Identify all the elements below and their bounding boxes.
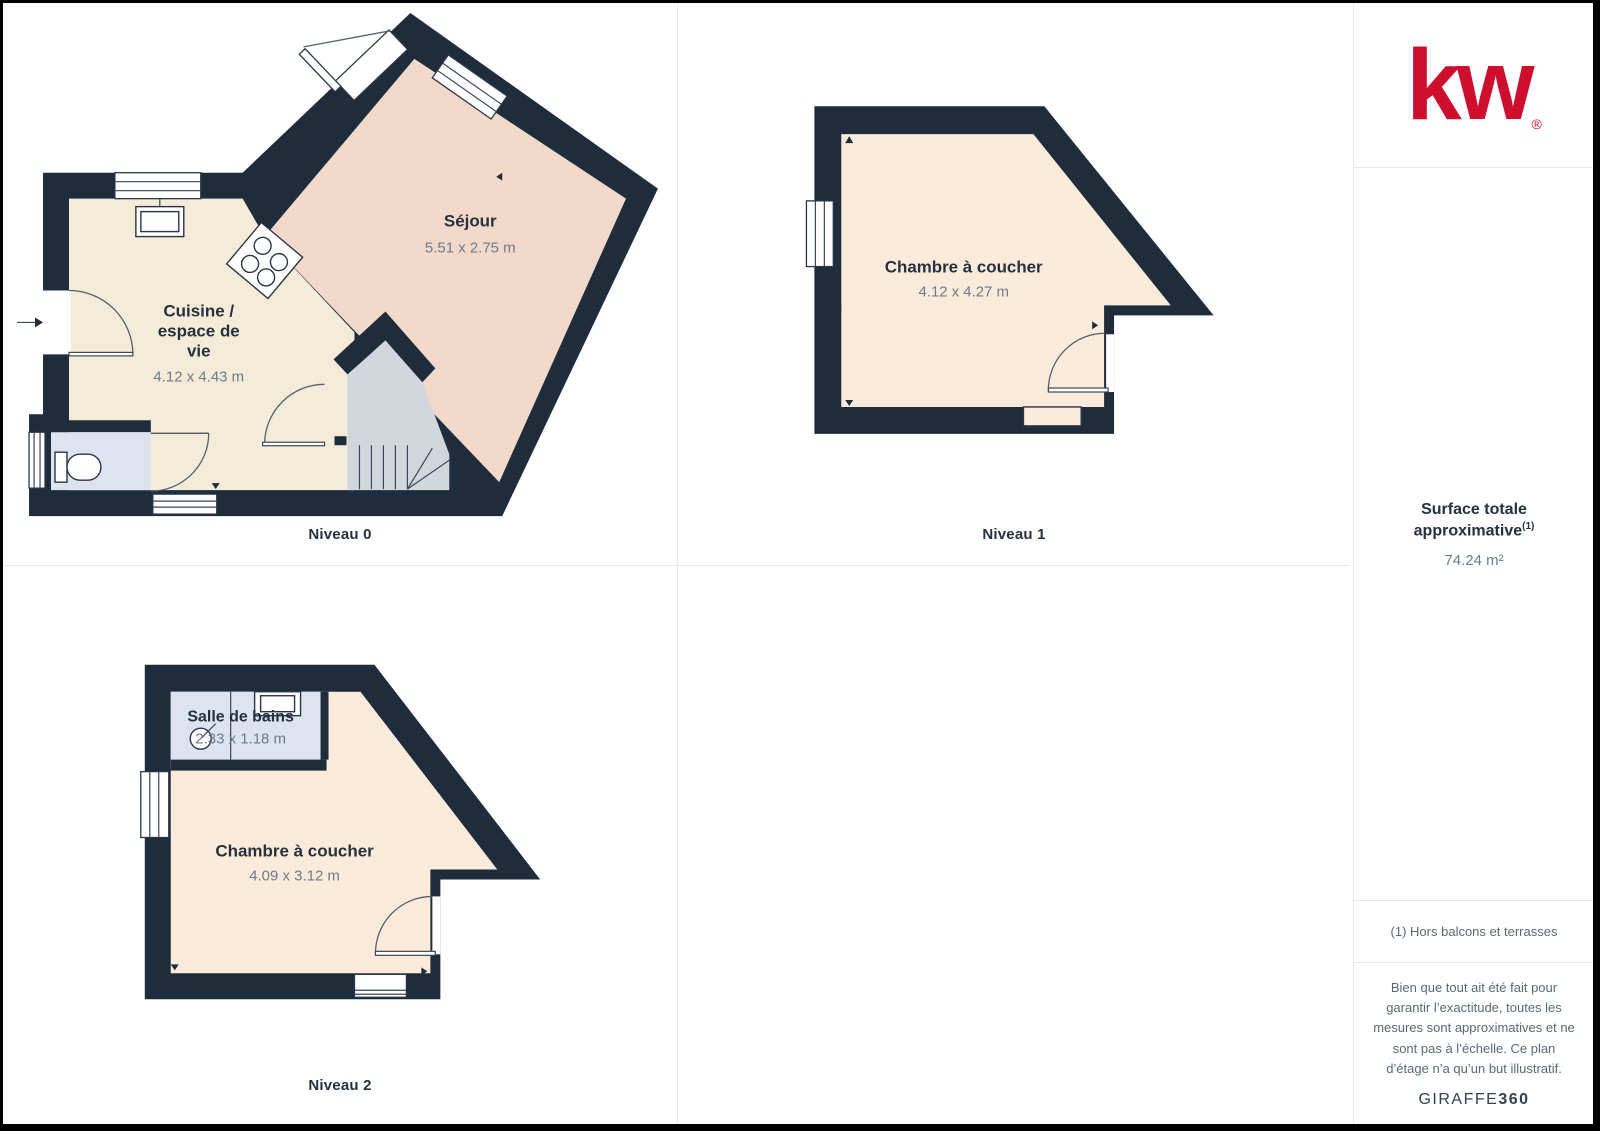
room-dims-sejour: 5.51 x 2.75 m: [425, 240, 516, 257]
room-dims-chambre-n1: 4.12 x 4.27 m: [919, 283, 1009, 300]
niveau2-bottom-window: [354, 974, 406, 997]
toilet-icon: [55, 452, 101, 482]
kw-logo-text: kw: [1406, 35, 1529, 135]
floorplan-niveau-1: Chambre à coucher 4.12 x 4.27 m: [678, 3, 1350, 565]
level-caption-2: Niveau 2: [3, 1077, 677, 1094]
room-label-cuisine-2: espace de: [158, 321, 240, 340]
room-label-cuisine-1: Cuisine /: [163, 301, 234, 320]
room-label-chambre-n1: Chambre à coucher: [885, 258, 1043, 277]
floorplan-sheet: Séjour 5.51 x 2.75 m Cuisine / espace de…: [0, 0, 1600, 1131]
plans-grid: Séjour 5.51 x 2.75 m Cuisine / espace de…: [3, 3, 1353, 1124]
niveau2-left-window: [141, 772, 169, 838]
footnote-text: (1) Hors balcons et terrasses: [1391, 924, 1558, 939]
niveau0-bottom-window: [153, 494, 217, 514]
room-label-salle-de-bains: Salle de bains: [187, 709, 294, 726]
level-caption-1: Niveau 1: [678, 526, 1350, 543]
level-2-panel: Salle de bains 2.33 x 1.18 m Chambre à c…: [3, 566, 678, 1124]
giraffe360-logo: GIRAFFE360: [1418, 1091, 1529, 1109]
footnote-section: (1) Hors balcons et terrasses: [1354, 900, 1593, 962]
room-label-sejour: Séjour: [444, 212, 497, 231]
giraffe360-regular: GIRAFFE: [1418, 1091, 1498, 1108]
room-dims-cuisine: 4.12 x 4.43 m: [153, 368, 244, 385]
room-dims-chambre-n2: 4.09 x 3.12 m: [249, 867, 340, 884]
room-label-cuisine-3: vie: [187, 341, 211, 360]
sidebar: kw ® Surface totale approximative(1) 74.…: [1353, 3, 1593, 1124]
bathroom-window: [29, 432, 45, 488]
surface-title-line1: Surface totale: [1421, 501, 1527, 518]
level-caption-0: Niveau 0: [3, 526, 677, 543]
surface-title: Surface totale approximative(1): [1414, 499, 1535, 543]
disclaimer-text: Bien que tout ait été fait pour garantir…: [1370, 978, 1578, 1079]
floorplan-niveau-2: Salle de bains 2.33 x 1.18 m Chambre à c…: [3, 566, 677, 1124]
giraffe360-bold: 360: [1498, 1091, 1529, 1108]
kitchen-window: [115, 173, 201, 199]
registered-mark-icon: ®: [1532, 117, 1542, 131]
surface-section: Surface totale approximative(1) 74.24 m²: [1354, 168, 1593, 900]
disclaimer-section: Bien que tout ait été fait pour garantir…: [1354, 962, 1593, 1124]
floorplan-niveau-0: Séjour 5.51 x 2.75 m Cuisine / espace de…: [3, 3, 677, 565]
surface-title-line2: approximative: [1414, 523, 1522, 540]
empty-panel: [678, 566, 1350, 1124]
level-1-panel: Chambre à coucher 4.12 x 4.27 m Niveau 1: [678, 3, 1350, 566]
level-0-panel: Séjour 5.51 x 2.75 m Cuisine / espace de…: [3, 3, 678, 566]
entry-arrow-icon: [17, 317, 43, 327]
room-dims-salle-de-bains: 2.33 x 1.18 m: [195, 731, 286, 748]
room-label-chambre-n2: Chambre à coucher: [215, 841, 374, 860]
niveau1-bottom-niche: [1023, 407, 1081, 426]
surface-title-footnote-ref: (1): [1522, 521, 1534, 532]
bathroom-door-opening: [153, 420, 211, 432]
sheet-inner: Séjour 5.51 x 2.75 m Cuisine / espace de…: [3, 3, 1593, 1124]
niveau1-left-window: [806, 201, 833, 267]
kw-logo: kw ®: [1406, 35, 1542, 135]
brand-logo-section: kw ®: [1354, 3, 1593, 168]
surface-value: 74.24 m²: [1444, 552, 1503, 569]
